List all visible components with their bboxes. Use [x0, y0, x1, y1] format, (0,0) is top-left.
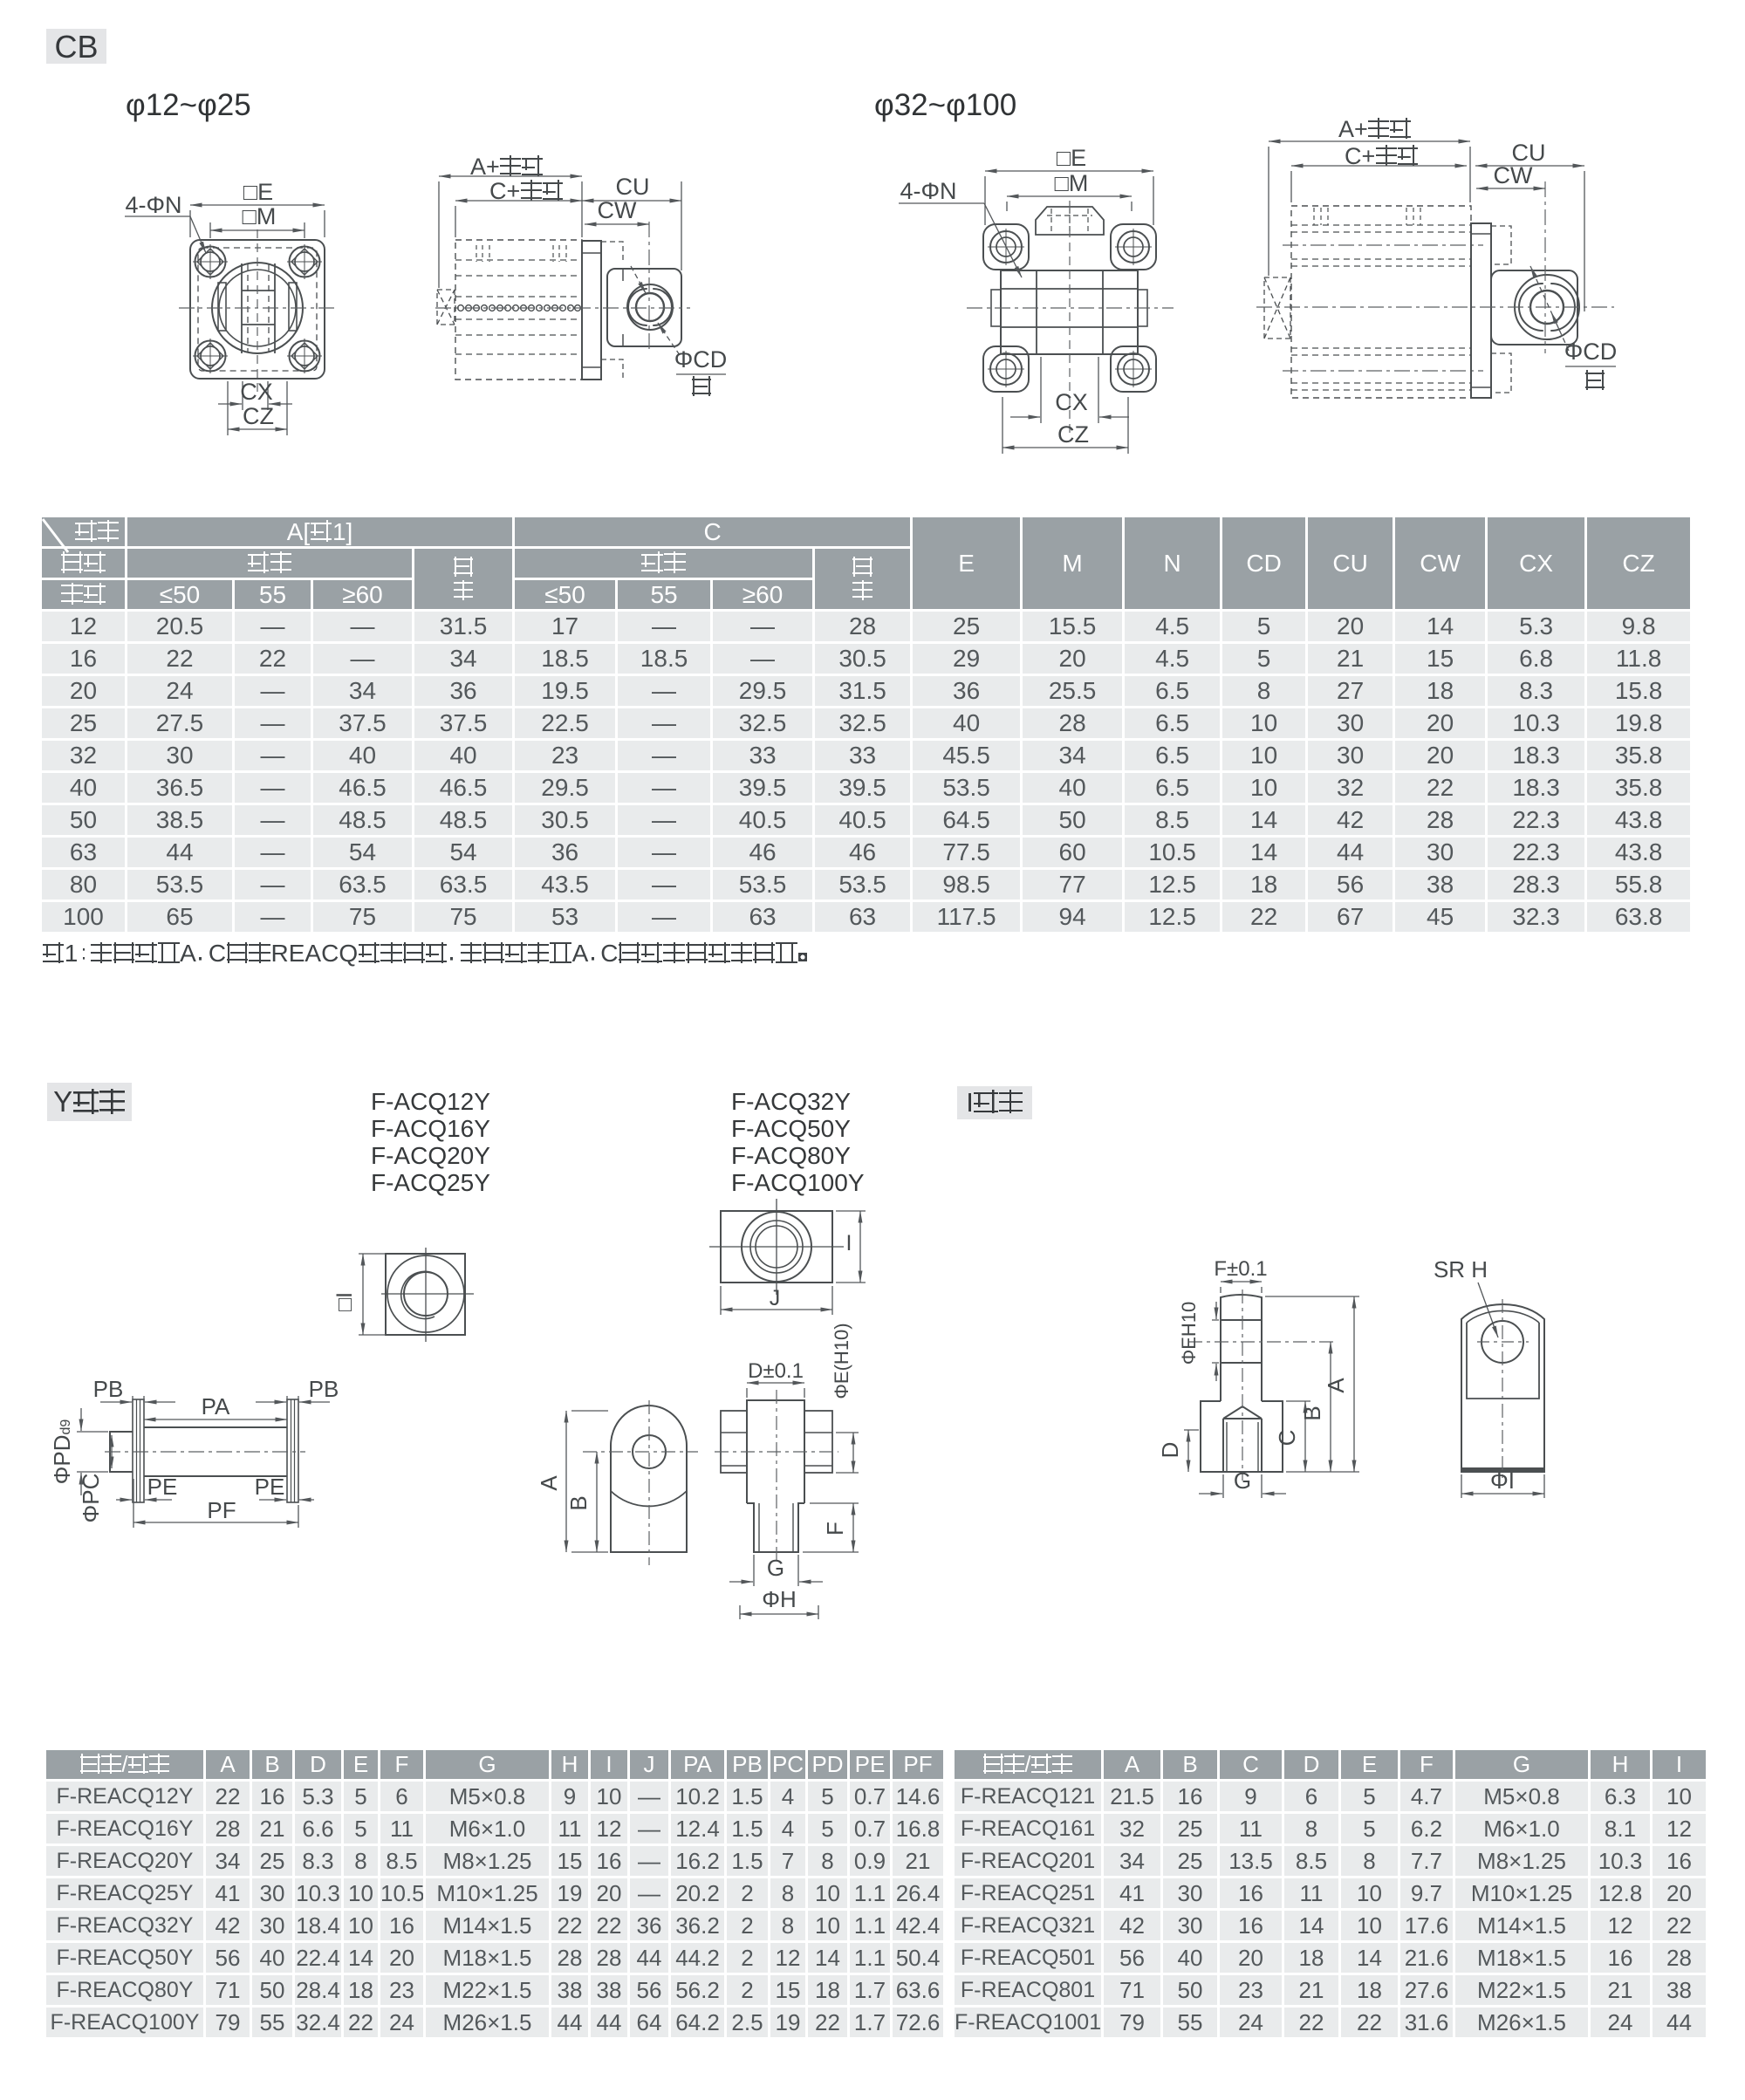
- svg-text:PE: PE: [255, 1474, 285, 1500]
- svg-text:J: J: [770, 1286, 781, 1310]
- svg-text:ΦE(H10): ΦE(H10): [831, 1323, 852, 1399]
- svg-text:ΦH: ΦH: [762, 1586, 797, 1612]
- svg-text:D: D: [1157, 1442, 1183, 1459]
- svg-text:□I: □I: [332, 1292, 357, 1311]
- svg-text:CZ: CZ: [243, 403, 274, 429]
- svg-text:A: A: [1323, 1378, 1349, 1393]
- svg-text:CZ: CZ: [1057, 421, 1089, 448]
- svg-text:CX: CX: [1055, 389, 1088, 415]
- svg-text:PB: PB: [309, 1376, 339, 1402]
- svg-text:D±0.1: D±0.1: [748, 1359, 804, 1383]
- svg-text:ΦCD: ΦCD: [1564, 339, 1618, 365]
- svg-text:ΦEH10: ΦEH10: [1178, 1302, 1200, 1365]
- svg-text:□E: □E: [1057, 145, 1086, 171]
- svg-text:I: I: [846, 1231, 852, 1255]
- svg-text:ΦPC: ΦPC: [78, 1474, 104, 1523]
- svg-text:A: A: [536, 1475, 562, 1491]
- svg-text:ΦI: ΦI: [1490, 1467, 1515, 1494]
- svg-text:□M: □M: [243, 203, 277, 229]
- svg-text:4-ΦN: 4-ΦN: [125, 192, 181, 218]
- svg-text:PA: PA: [202, 1393, 230, 1419]
- svg-text:CX: CX: [240, 379, 273, 405]
- svg-text:CW: CW: [598, 197, 637, 223]
- svg-text:B: B: [1299, 1406, 1325, 1420]
- svg-text:G: G: [1234, 1467, 1251, 1494]
- svg-text:ΦPDd9: ΦPDd9: [49, 1419, 75, 1485]
- svg-text:PE: PE: [147, 1474, 178, 1500]
- svg-text:G: G: [767, 1555, 784, 1581]
- svg-text:F±0.1: F±0.1: [1214, 1257, 1267, 1281]
- svg-text:PB: PB: [93, 1376, 124, 1402]
- svg-text:PF: PF: [207, 1497, 236, 1523]
- svg-text:CW: CW: [1494, 162, 1533, 188]
- svg-text:CU: CU: [616, 174, 650, 200]
- svg-text:ΦCD: ΦCD: [674, 346, 728, 373]
- svg-text:C: C: [1274, 1430, 1300, 1447]
- svg-text:B: B: [565, 1495, 592, 1510]
- svg-text:F: F: [822, 1522, 848, 1536]
- svg-text:□M: □M: [1055, 170, 1089, 196]
- svg-text:4-ΦN: 4-ΦN: [900, 178, 956, 204]
- svg-text:SR H: SR H: [1434, 1256, 1488, 1283]
- svg-text:□E: □E: [243, 179, 273, 205]
